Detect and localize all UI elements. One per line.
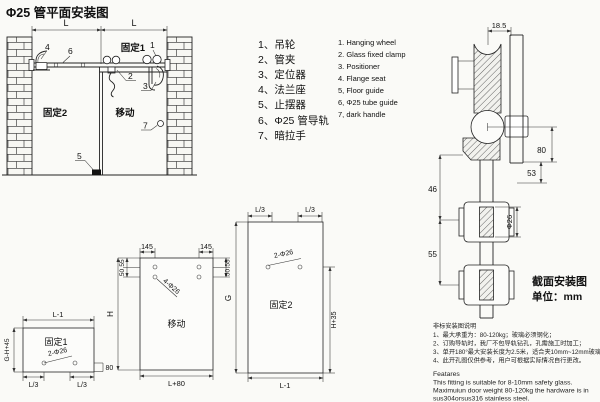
dim-L-left: L — [63, 18, 68, 28]
plan-fixed2-label: 固定2 — [43, 107, 67, 119]
installation-drawing-sheet: Φ25 管平面安装图 L L — [0, 0, 600, 402]
panel-moving: 4-Φ26 移动 145 145 55 50 55 50 H L+80 — [106, 244, 232, 388]
moving-dim-55-right: 55 — [225, 259, 232, 267]
legend-zh-item-6: 6、Φ25 管导轨 — [258, 114, 329, 127]
legend-zh-item-5: 5、止摆器 — [258, 98, 306, 111]
callout-1: 1 — [150, 40, 155, 50]
moving-dim-55-left: 55 — [119, 259, 126, 267]
section-dim-53: 53 — [517, 162, 547, 183]
moving-dim-bottom: L+80 — [168, 379, 185, 388]
callout-5: 5 — [77, 151, 82, 161]
fixed2-dim-l3-right: L/3 — [305, 207, 315, 214]
moving-label: 移动 — [167, 318, 185, 329]
notes-zh-line-3: 3、单开180°最大安装长度为2.5米，适合夹10mm~12mm玻璃； — [433, 348, 600, 356]
notes-zh-line-1: 1、最大承重为：80-120kg；玻璃必须钢化； — [433, 331, 555, 339]
legend: 1、吊轮 2、管夹 3、定位器 4、法兰座 5、止摆器 6、Φ25 管导轨 7、… — [258, 38, 406, 142]
legend-zh-item-7: 7、暗拉手 — [258, 129, 306, 142]
callout-7: 7 — [143, 121, 148, 131]
side-plate — [452, 57, 458, 93]
dim-53: 53 — [527, 169, 536, 178]
callout-2: 2 — [128, 71, 133, 81]
plan-view: L L — [2, 18, 197, 175]
notes-en-title: Featares — [433, 371, 460, 378]
notes-zh-line-4: 4、此开孔图仅供参考，用户可根据实际情况自行更改。 — [433, 357, 585, 365]
fixed1-dim-right: 80 — [106, 365, 114, 372]
brick-wall-right — [167, 37, 192, 175]
wheel-section — [474, 44, 501, 113]
legend-en-item-4: 4. Flange seat — [338, 74, 386, 83]
panel-fixed2: 2-Φ26 固定2 L/3 L/3 G H+35 L-1 — [224, 207, 338, 390]
section-caption: 截面安装图 — [532, 274, 587, 288]
plan-callouts: 4 6 固定1 1 2 3 7 5 — [41, 40, 157, 170]
fixed2-dim-g: G — [224, 295, 233, 301]
dim-46: 46 — [428, 185, 437, 194]
fixed2-dim-h35: H+35 — [331, 311, 338, 328]
legend-en-item-5: 5, Floor guide — [338, 86, 384, 95]
section-unit: 单位：mm — [532, 290, 582, 303]
section-dims-left: 46 55 — [428, 155, 463, 285]
legend-zh-item-2: 2、管夹 — [258, 53, 295, 66]
fixed1-label: 固定1 — [44, 336, 67, 347]
legend-en-item-2: 2. Glass fixed clamp — [338, 50, 406, 59]
dark-handle — [158, 121, 164, 127]
page-title: Φ25 管平面安装图 — [6, 5, 109, 20]
floor-guide-block — [92, 170, 101, 176]
legend-en-item-7: 7, dark handle — [338, 110, 386, 119]
legend-zh-item-1: 1、吊轮 — [258, 38, 296, 51]
plan-moving-label: 移动 — [115, 107, 135, 119]
plan-fixed1-label: 固定1 — [121, 42, 146, 54]
notes-zh-title: 非标安装图说明 — [433, 322, 476, 330]
legend-zh-item-4: 4、法兰座 — [258, 83, 306, 96]
notes-en-line-2: Maximuiun door weight 80-120kg the hardw… — [433, 388, 589, 395]
dim-18-5: 18.5 — [492, 21, 507, 30]
dim-55: 55 — [428, 250, 437, 259]
moving-dim-50-left: 50 — [119, 269, 126, 277]
dim-L-right: L — [131, 18, 136, 28]
panel-fixed1: 固定1 2-Φ26 L-1 G-H+45 L/3 L/3 80 — [4, 310, 113, 389]
notes-en-line-3: sus304orsus316 stainless steel. — [433, 396, 529, 402]
fixed2-label: 固定2 — [269, 299, 292, 310]
moving-dim-145-right: 145 — [200, 244, 212, 251]
notes-zh-line-2: 2、订购导轨时，我厂不包导轨钻孔，孔需施工时加工； — [433, 340, 585, 348]
wall-track-plate — [505, 35, 528, 163]
legend-zh-item-3: 3、定位器 — [258, 68, 306, 81]
fixed1-dim-left: G-H+45 — [4, 338, 11, 361]
fixed1-dim-bl: L/3 — [29, 382, 39, 389]
drawing-canvas: Φ25 管平面安装图 L L — [0, 0, 600, 402]
fixed1-dim-br: L/3 — [77, 382, 87, 389]
moving-dim-h: H — [106, 311, 115, 317]
dim-phi26: Φ26 — [505, 215, 514, 229]
callout-4: 4 — [45, 42, 50, 52]
brick-wall-left — [7, 37, 32, 175]
door-panels-plan: 固定2 移动 — [43, 67, 167, 175]
legend-en-item-1: 1. Hanging wheel — [338, 38, 396, 47]
moving-dim-145-left: 145 — [141, 244, 153, 251]
glass-clamp-hanger — [103, 56, 120, 97]
legend-en-item-3: 3. Positioner — [338, 62, 380, 71]
moving-dim-50-right: 50 — [225, 269, 232, 277]
legend-en-item-6: 6, Φ25 tube guide — [338, 98, 398, 107]
callout-3: 3 — [143, 81, 148, 91]
fixed2-dim-bottom: L-1 — [280, 381, 291, 390]
glass-clamp-block-2 — [459, 265, 514, 305]
dim-80: 80 — [537, 146, 546, 155]
section-dim-18-5: 18.5 — [488, 21, 511, 45]
notes: 非标安装图说明 1、最大承重为：80-120kg；玻璃必须钢化； 2、订购导轨时… — [433, 322, 600, 402]
fixed1-dim-top: L-1 — [53, 310, 64, 319]
section-view: 18.5 80 53 46 55 Φ26 — [428, 21, 587, 318]
callout-6: 6 — [68, 46, 73, 56]
fixed2-dim-l3-left: L/3 — [255, 207, 265, 214]
notes-en-line-1: This fitting is suitable for 8-10mm safe… — [433, 380, 573, 387]
